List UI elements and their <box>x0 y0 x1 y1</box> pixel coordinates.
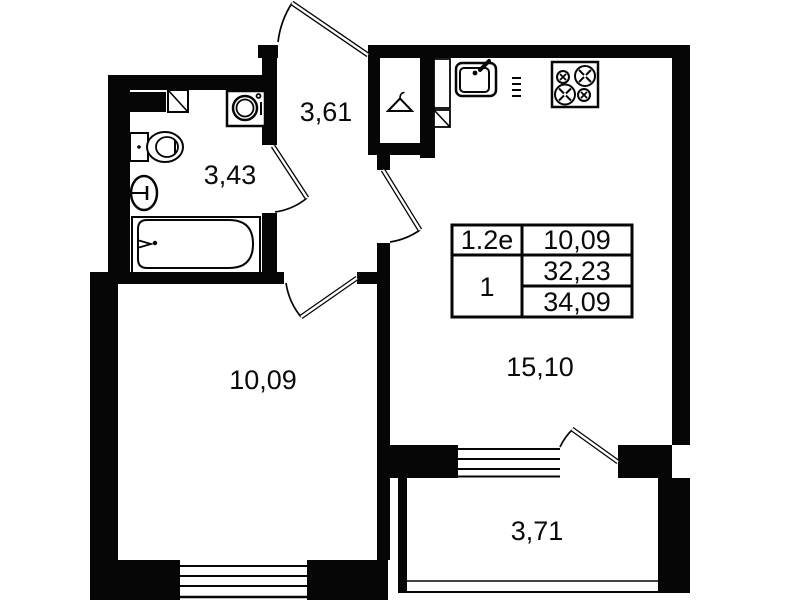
wash-basin-icon <box>130 176 157 210</box>
wall-closet-right <box>420 57 435 158</box>
wall-bathroom-top <box>108 75 277 90</box>
wall-closet-left <box>368 45 380 155</box>
wall-living-bottom-left <box>387 445 458 478</box>
stove-icon <box>552 62 598 107</box>
bathtub-icon <box>132 217 260 273</box>
wall-bottom-left <box>90 560 180 600</box>
wall-balcony-left <box>398 478 407 593</box>
living-area-cell: 10,09 <box>543 225 611 255</box>
bathroom-shelf-icon <box>168 90 188 112</box>
wall-top <box>368 45 690 58</box>
living-area-label: 15,10 <box>506 352 574 382</box>
toilet-icon <box>130 132 183 162</box>
floor-plan-page: 3,61 3,43 10,09 15,10 3,71 1.2е 10,09 1 … <box>0 0 799 600</box>
wall-outer-left-bedroom <box>90 272 118 600</box>
wall-outer-left-bathroom <box>108 75 130 283</box>
hallway-area-label: 3,61 <box>300 97 353 127</box>
washing-machine-icon <box>227 91 265 126</box>
wall-living-bottom-right <box>618 445 672 478</box>
wall-bottom-mid <box>307 560 388 600</box>
unit-code-cell: 1.2е <box>461 225 514 255</box>
wall-closet-bottom <box>370 143 425 155</box>
area-no-balcony-cell: 32,23 <box>543 256 611 286</box>
floor-plan-canvas: 3,61 3,43 10,09 15,10 3,71 1.2е 10,09 1 … <box>0 0 799 600</box>
balcony-area-label: 3,71 <box>511 516 564 546</box>
bedroom-area-label: 10,09 <box>229 365 297 395</box>
total-area-cell: 34,09 <box>543 287 611 317</box>
duct-shaft-icon <box>434 59 450 127</box>
bathroom-area-label: 3,43 <box>204 160 257 190</box>
wall-outer-right <box>672 45 690 445</box>
wall-bedroom-living <box>377 243 390 560</box>
wall-balcony-right <box>658 478 690 593</box>
room-count-cell: 1 <box>479 272 494 302</box>
bathroom-cabinet-icon <box>130 92 166 112</box>
